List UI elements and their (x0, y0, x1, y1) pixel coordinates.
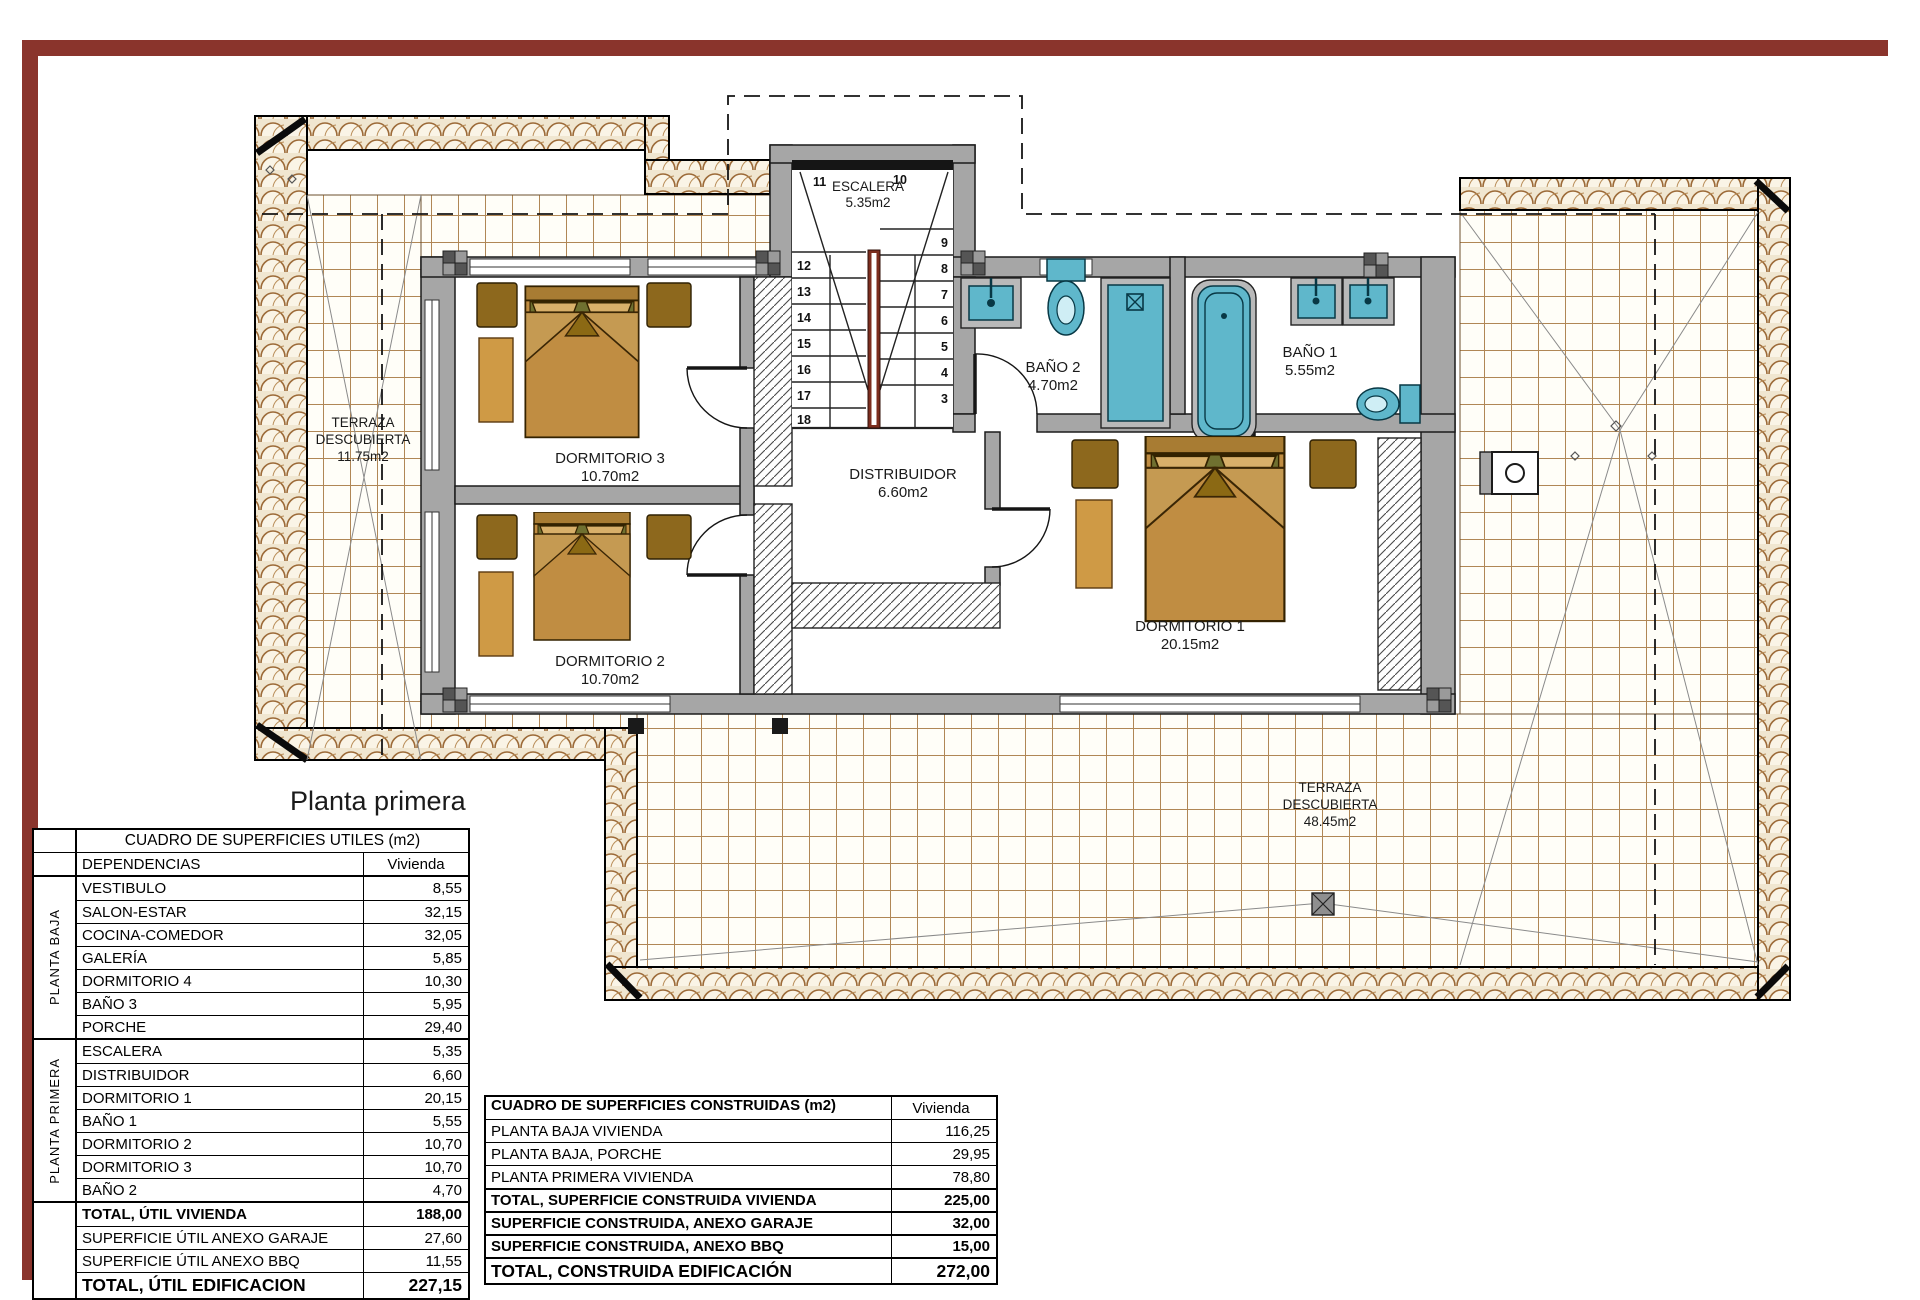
table-superficies-utiles: CUADRO DE SUPERFICIES UTILES (m2) DEPEND… (32, 828, 470, 1300)
table-row: COCINA-COMEDOR32,05 (77, 923, 468, 946)
svg-text:9: 9 (941, 236, 948, 250)
label-dormitorio-3: DORMITORIO 3 (555, 450, 665, 467)
room-area: 10,70 (363, 1133, 468, 1155)
svg-text:17: 17 (797, 389, 811, 403)
svg-text:12: 12 (797, 259, 811, 273)
room-name: ESCALERA (77, 1043, 363, 1060)
svg-text:DESCUBIERTA: DESCUBIERTA (316, 432, 411, 447)
svg-text:11: 11 (813, 175, 826, 189)
room-name: DORMITORIO 4 (77, 973, 363, 990)
room-name: SALON-ESTAR (77, 904, 363, 921)
svg-text:6.60m2: 6.60m2 (878, 484, 928, 501)
svg-text:4.70m2: 4.70m2 (1028, 377, 1078, 394)
total-row-grand: TOTAL, ÚTIL EDIFICACION227,15 (77, 1272, 468, 1298)
table-row: BAÑO 35,95 (77, 992, 468, 1015)
room-name: DORMITORIO 3 (77, 1159, 363, 1176)
room-name: DORMITORIO 2 (77, 1136, 363, 1153)
table-row: BAÑO 15,55 (77, 1109, 468, 1132)
svg-text:16: 16 (797, 363, 811, 377)
group-planta-primera: PLANTA PRIMERA ESCALERA5,35 DISTRIBUIDOR… (34, 1038, 468, 1201)
bathtub-bano1 (1192, 280, 1256, 442)
room-name: DISTRIBUIDOR (77, 1067, 363, 1084)
table-row: PLANTA BAJA, PORCHE29,95 (486, 1142, 996, 1165)
svg-text:TERRAZA: TERRAZA (1298, 780, 1361, 795)
vent-box (1492, 452, 1538, 494)
table-header-row: DEPENDENCIAS Vivienda (34, 852, 468, 875)
room-name: DORMITORIO 1 (77, 1090, 363, 1107)
label-distribuidor: DISTRIBUIDOR (849, 466, 957, 483)
svg-text:3: 3 (941, 392, 948, 406)
table-title: CUADRO DE SUPERFICIES CONSTRUIDAS (m2) (486, 1097, 891, 1119)
svg-text:48.45m2: 48.45m2 (1304, 814, 1357, 829)
room-area: 4,70 (363, 1179, 468, 1201)
group-planta-baja: PLANTA BAJA VESTIBULO8,55 SALON-ESTAR32,… (34, 875, 468, 1038)
drain-symbol (1312, 893, 1334, 915)
sinks-bano1 (1291, 278, 1394, 325)
floor-plan-sheet: { "title": "Planta primera", "colors": {… (0, 0, 1920, 1280)
room-area: 10,70 (363, 1156, 468, 1178)
total-row: SUPERFICIE CONSTRUIDA, ANEXO GARAJE32,00 (486, 1211, 996, 1234)
room-name: BAÑO 1 (77, 1113, 363, 1130)
totals-section: TOTAL, ÚTIL VIVIENDA188,00 SUPERFICIE ÚT… (34, 1201, 468, 1298)
room-name: BAÑO 3 (77, 996, 363, 1013)
total-row: TOTAL, ÚTIL VIVIENDA188,00 (77, 1203, 468, 1226)
col-header-dependencias: DEPENDENCIAS (77, 853, 363, 875)
toilet-bano2 (1047, 259, 1085, 335)
table-title-row: CUADRO DE SUPERFICIES CONSTRUIDAS (m2) V… (486, 1097, 996, 1119)
room-area: 5,95 (363, 993, 468, 1015)
table-row: ESCALERA5,35 (77, 1040, 468, 1063)
toilet-bano1 (1357, 385, 1420, 423)
room-area: 32,05 (363, 924, 468, 946)
table-row: PORCHE29,40 (77, 1015, 468, 1038)
page-title: Planta primera (290, 786, 467, 816)
label-bano-2: BAÑO 2 (1025, 359, 1080, 376)
room-name: COCINA-COMEDOR (77, 927, 363, 944)
room-area: 29,40 (363, 1016, 468, 1038)
label-dormitorio-2: DORMITORIO 2 (555, 653, 665, 670)
group-label: PLANTA PRIMERA (47, 1058, 62, 1184)
svg-text:8: 8 (941, 262, 948, 276)
room-name: GALERÍA (77, 950, 363, 967)
svg-text:18: 18 (797, 413, 811, 427)
shower-bano2 (1101, 278, 1170, 428)
room-area: 20,15 (363, 1087, 468, 1109)
room-area: 10,30 (363, 970, 468, 992)
table-row: DORMITORIO 210,70 (77, 1132, 468, 1155)
sink-bano2 (961, 278, 1021, 328)
table-row: DORMITORIO 310,70 (77, 1155, 468, 1178)
table-row: SALON-ESTAR32,15 (77, 900, 468, 923)
svg-text:10.70m2: 10.70m2 (581, 468, 639, 485)
table-row: DORMITORIO 410,30 (77, 969, 468, 992)
room-area: 5,55 (363, 1110, 468, 1132)
table-title-row: CUADRO DE SUPERFICIES UTILES (m2) (34, 830, 468, 852)
room-area: 5,35 (363, 1040, 468, 1063)
frame-top-bar (30, 40, 1888, 56)
svg-text:14: 14 (797, 311, 811, 325)
svg-text:6: 6 (941, 314, 948, 328)
svg-text:15: 15 (797, 337, 811, 351)
col-header-vivienda: Vivienda (363, 853, 468, 875)
svg-text:13: 13 (797, 285, 811, 299)
table-row: GALERÍA5,85 (77, 946, 468, 969)
svg-text:20.15m2: 20.15m2 (1161, 636, 1219, 653)
svg-text:11.75m2: 11.75m2 (337, 449, 389, 464)
room-area: 6,60 (363, 1064, 468, 1086)
label-escalera: ESCALERA (832, 179, 904, 194)
room-name: PORCHE (77, 1019, 363, 1036)
svg-text:DESCUBIERTA: DESCUBIERTA (1283, 797, 1378, 812)
svg-text:5: 5 (941, 340, 948, 354)
table-superficies-construidas: CUADRO DE SUPERFICIES CONSTRUIDAS (m2) V… (484, 1095, 998, 1285)
total-row: TOTAL, SUPERFICIE CONSTRUIDA VIVIENDA225… (486, 1188, 996, 1211)
svg-text:TERRAZA: TERRAZA (331, 415, 394, 430)
label-dormitorio-1: DORMITORIO 1 (1135, 618, 1245, 635)
room-area: 32,15 (363, 901, 468, 923)
svg-text:10.70m2: 10.70m2 (581, 671, 639, 688)
room-name: BAÑO 2 (77, 1182, 363, 1199)
room-area: 8,55 (363, 877, 468, 900)
total-row: SUPERFICIE ÚTIL ANEXO GARAJE27,60 (77, 1226, 468, 1249)
room-name: VESTIBULO (77, 880, 363, 897)
svg-text:7: 7 (941, 288, 948, 302)
svg-text:5.55m2: 5.55m2 (1285, 362, 1335, 379)
table-title: CUADRO DE SUPERFICIES UTILES (m2) (77, 830, 468, 852)
svg-text:4: 4 (941, 366, 948, 380)
total-row: SUPERFICIE ÚTIL ANEXO BBQ11,55 (77, 1249, 468, 1272)
room-area: 5,85 (363, 947, 468, 969)
table-row: DISTRIBUIDOR6,60 (77, 1063, 468, 1086)
svg-text:5.35m2: 5.35m2 (845, 195, 890, 210)
table-row: BAÑO 24,70 (77, 1178, 468, 1201)
table-row: DORMITORIO 120,15 (77, 1086, 468, 1109)
group-label: PLANTA BAJA (47, 909, 62, 1005)
table-row: PLANTA BAJA VIVIENDA116,25 (486, 1119, 996, 1142)
col-header-vivienda: Vivienda (891, 1097, 996, 1119)
table-row: VESTIBULO8,55 (77, 877, 468, 900)
total-row-grand: TOTAL, CONSTRUIDA EDIFICACIÓN272,00 (486, 1257, 996, 1283)
label-bano-1: BAÑO 1 (1282, 344, 1337, 361)
total-row: SUPERFICIE CONSTRUIDA, ANEXO BBQ15,00 (486, 1234, 996, 1257)
table-row: PLANTA PRIMERA VIVIENDA78,80 (486, 1165, 996, 1188)
